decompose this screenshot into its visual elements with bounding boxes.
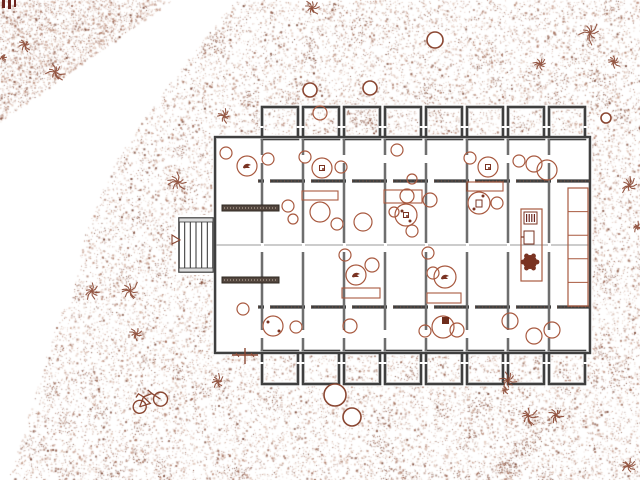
plant-icon [579,24,599,46]
furniture-dot [409,220,412,223]
bay-inner-line [510,109,543,138]
bay-outline [549,351,585,384]
plant-icon [305,1,320,14]
dark-square-glyph [442,317,449,324]
stair-cap-top [179,218,213,222]
site-plan-viewport [0,0,640,480]
bay-outline [508,107,544,139]
bay-inner-line [469,109,502,138]
plant-icon [633,221,640,233]
bay-inner-line [428,109,461,138]
bay-halo [426,351,462,384]
furniture-dot [401,210,404,213]
corner-bar [14,0,16,7]
potted-plant-leaf [535,260,540,265]
bay-outline [467,351,503,384]
bay-outline [426,107,462,139]
bay-outline [385,351,421,384]
plant-icon [122,282,138,299]
bay-outline [426,351,462,384]
bay-inner-line [346,109,379,138]
bay-inner-line [469,353,502,383]
bay-halo [344,107,380,139]
corner-bar [8,0,11,9]
bay-outline [467,107,503,139]
furniture-dot [473,208,476,211]
bay-halo [426,107,462,139]
bay-outline [262,351,298,384]
plant-icon [502,386,509,394]
tree-icon [601,113,611,123]
plant-icon [0,54,7,61]
bay-inner-line [387,109,420,138]
bay-halo [385,351,421,384]
potted-plant-leaf [531,266,536,271]
bay-halo [467,107,503,139]
bay-outline [303,351,339,384]
plant-icon [217,108,229,123]
furniture-dot [278,330,281,333]
bay-inner-line [551,353,584,383]
bay-outline [549,107,585,139]
tree-icon [303,83,317,97]
bay-halo [262,351,298,384]
bay-outline [508,351,544,384]
bay-inner-line [387,353,420,383]
bay-halo [262,107,298,139]
potted-plant-leaf [524,266,529,271]
bay-outline [262,107,298,139]
plant-icon [608,56,621,69]
bay-outline [303,107,339,139]
bay-halo [385,107,421,139]
plant-icon [129,328,142,341]
bay-halo [303,351,339,384]
corner-bar [2,0,5,8]
furniture-dot [482,195,485,198]
tree-icon [343,408,361,426]
bay-outline [385,107,421,139]
bay-inner-line [551,109,584,138]
tree-icon [427,32,443,48]
potted-plant-leaf [524,254,529,259]
bay-halo [344,351,380,384]
bay-halo [467,351,503,384]
bay-inner-line [510,353,543,383]
tree-icon [324,384,346,406]
tree-icon [363,81,377,95]
floor-plan-svg [0,0,640,480]
bike-frame [134,386,160,410]
glyph-dot [488,167,490,169]
plant-icon [212,373,223,388]
plant-icon [549,409,564,423]
bay-halo [303,107,339,139]
plant-icon [622,176,637,193]
glyph-dot [406,215,408,217]
bay-halo [549,351,585,384]
bay-halo [508,351,544,384]
bay-outline [344,351,380,384]
glyph-dot [322,168,324,170]
plant-icon [86,283,101,300]
plant-icon [19,40,30,52]
furniture-dot [267,321,270,324]
stair-cap-bottom [179,268,213,272]
bay-halo [549,107,585,139]
plant-icon [533,59,546,71]
building-layer [176,107,590,384]
bay-inner-line [264,109,297,138]
bay-inner-line [305,353,338,383]
potted-plant-leaf [521,260,526,265]
bay-outline [344,107,380,139]
bike-wheel [131,398,149,416]
bay-halo [508,107,544,139]
bicycle-icon [128,383,170,419]
plant-icon [45,64,65,80]
plant-icon [167,172,186,190]
bay-inner-line [428,353,461,383]
potted-plant-leaf [531,254,536,259]
bay-inner-line [305,109,338,138]
bay-inner-line [346,353,379,383]
plant-icon [623,458,636,472]
bay-inner-line [264,353,297,383]
plant-icon [522,408,539,426]
